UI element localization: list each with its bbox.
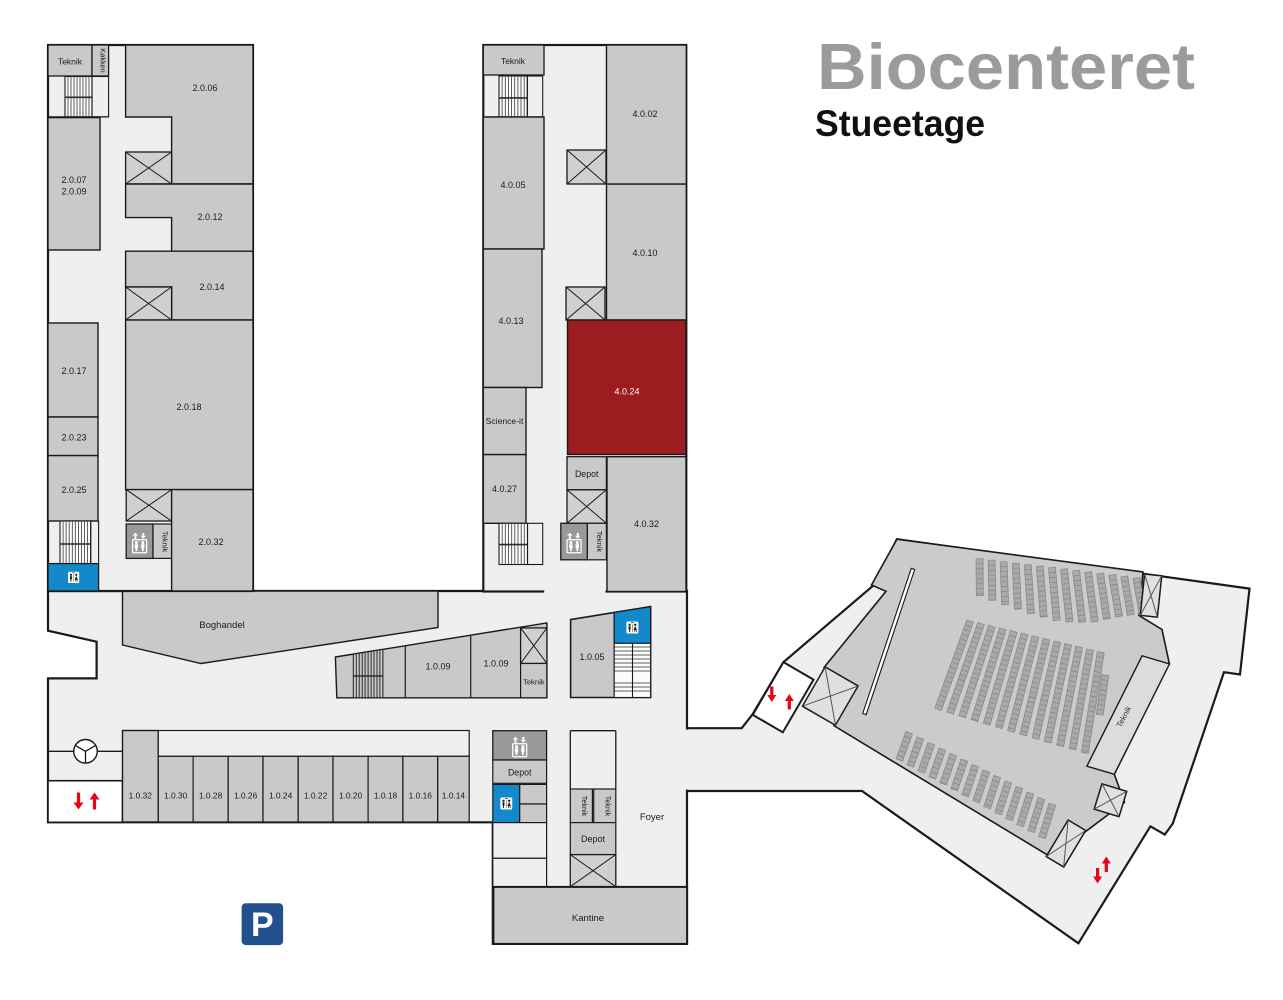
svg-text:1.0.16: 1.0.16 [409, 791, 433, 801]
svg-text:4.0.02: 4.0.02 [632, 109, 657, 119]
svg-text:1.0.26: 1.0.26 [234, 791, 258, 801]
svg-text:1.0.22: 1.0.22 [304, 791, 328, 801]
svg-text:1.0.28: 1.0.28 [199, 791, 223, 801]
svg-text:Science-it: Science-it [486, 416, 524, 426]
svg-text:1.0.32: 1.0.32 [129, 791, 153, 801]
svg-text:1.0.14: 1.0.14 [442, 791, 466, 801]
svg-text:Teknik: Teknik [603, 796, 612, 817]
svg-text:Teknik: Teknik [501, 56, 526, 66]
svg-text:1.0.09: 1.0.09 [425, 662, 450, 672]
svg-text:P: P [251, 906, 274, 944]
svg-text:Depot: Depot [581, 834, 606, 844]
svg-text:Kantine: Kantine [572, 913, 604, 924]
svg-text:Teknik: Teknik [523, 678, 545, 687]
svg-text:4.0.24: 4.0.24 [614, 387, 639, 397]
svg-text:4.0.27: 4.0.27 [492, 484, 517, 494]
svg-text:Teknik: Teknik [58, 57, 83, 67]
svg-text:1.0.20: 1.0.20 [339, 791, 363, 801]
svg-text:2.0.18: 2.0.18 [176, 402, 201, 412]
svg-text:Teknik: Teknik [580, 796, 589, 817]
svg-text:4.0.13: 4.0.13 [498, 316, 523, 326]
svg-text:4.0.05: 4.0.05 [500, 180, 525, 190]
svg-text:Depot: Depot [575, 469, 599, 479]
svg-text:Foyer: Foyer [640, 812, 664, 823]
svg-text:2.0.12: 2.0.12 [197, 212, 222, 222]
svg-text:2.0.25: 2.0.25 [61, 485, 86, 495]
svg-text:2.0.06: 2.0.06 [192, 83, 217, 93]
svg-text:2.0.07: 2.0.07 [61, 175, 86, 185]
svg-text:4.0.32: 4.0.32 [634, 519, 659, 529]
svg-text:2.0.17: 2.0.17 [61, 366, 86, 376]
svg-text:Boghandel: Boghandel [199, 620, 244, 631]
svg-text:1.0.05: 1.0.05 [579, 652, 604, 662]
svg-text:Biocenteret: Biocenteret [817, 30, 1195, 103]
svg-text:2.0.23: 2.0.23 [61, 433, 86, 443]
svg-text:Teknik: Teknik [160, 531, 169, 553]
svg-text:Stueetage: Stueetage [815, 103, 985, 144]
svg-text:2.0.09: 2.0.09 [61, 187, 86, 197]
svg-text:Teknik: Teknik [595, 531, 604, 553]
svg-text:4.0.10: 4.0.10 [632, 248, 657, 258]
svg-text:1.0.18: 1.0.18 [374, 791, 398, 801]
svg-text:Køkken: Køkken [99, 48, 108, 72]
svg-text:Depot: Depot [508, 768, 532, 778]
svg-text:1.0.24: 1.0.24 [269, 791, 293, 801]
svg-text:1.0.30: 1.0.30 [164, 791, 188, 801]
svg-text:2.0.32: 2.0.32 [198, 537, 223, 547]
svg-text:1.0.09: 1.0.09 [483, 659, 508, 669]
svg-text:2.0.14: 2.0.14 [199, 282, 224, 292]
